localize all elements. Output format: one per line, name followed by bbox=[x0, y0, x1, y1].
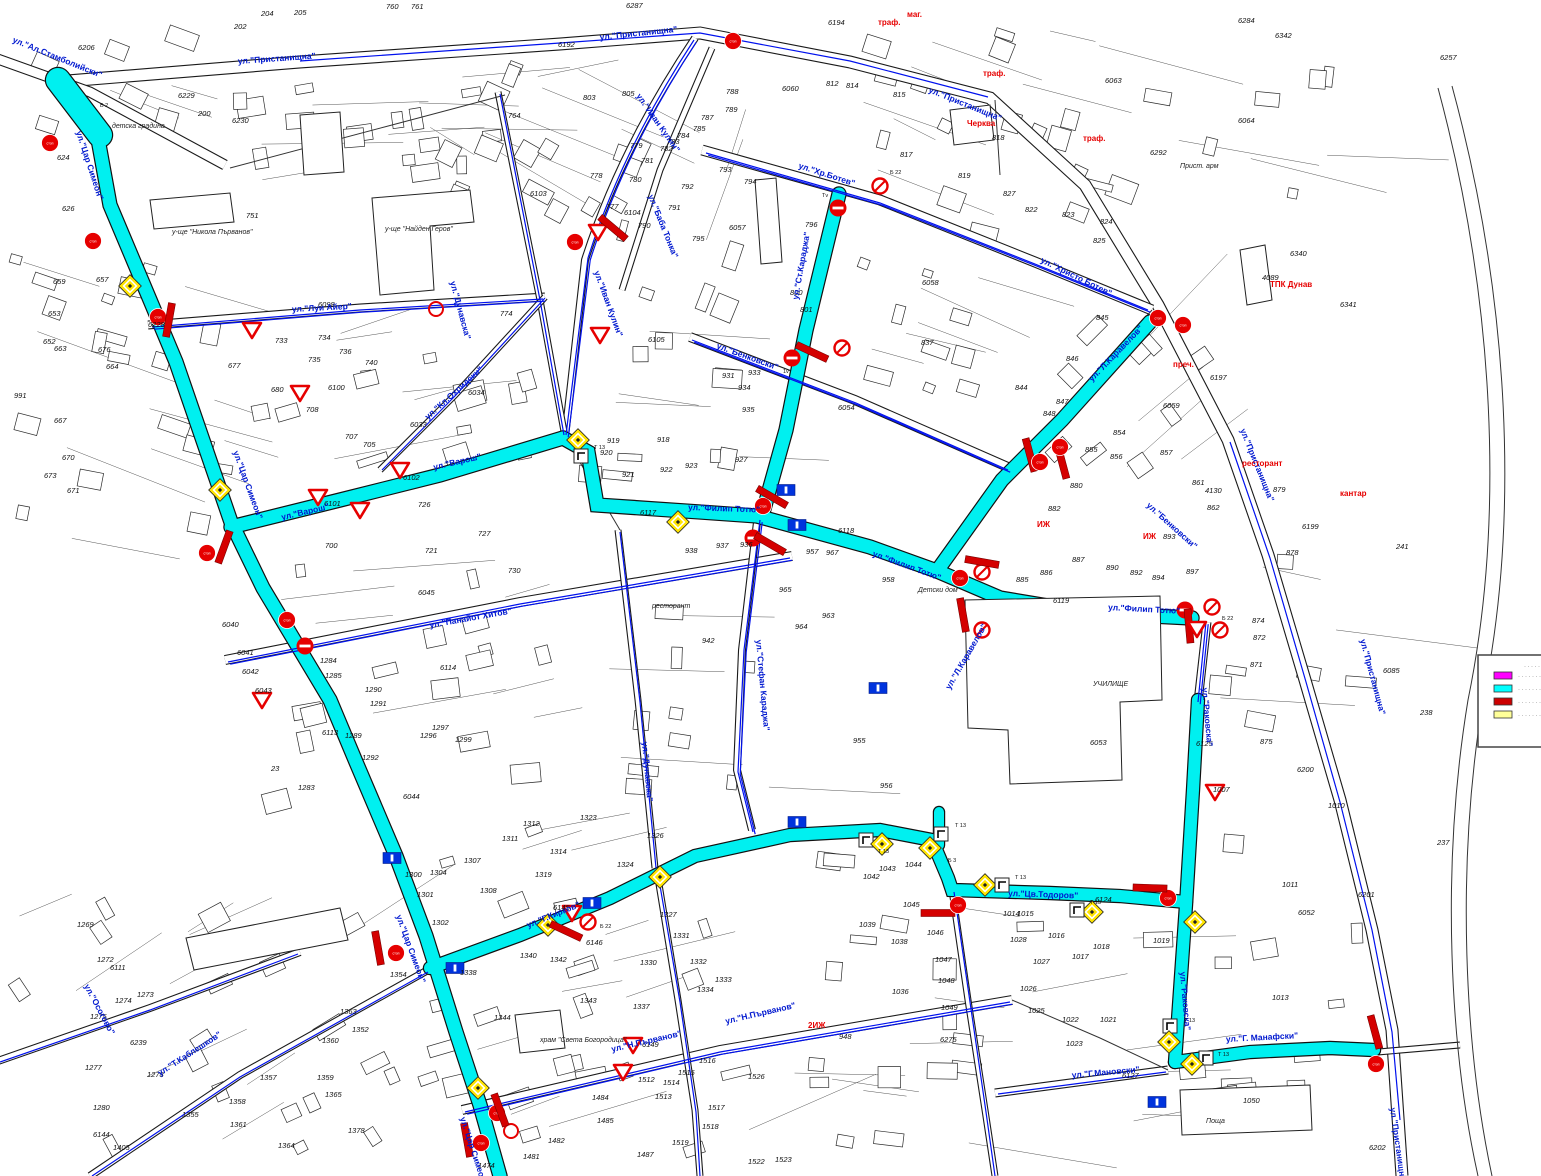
parcel-number: 874 bbox=[1252, 616, 1265, 625]
building-outline bbox=[104, 39, 129, 61]
building-outline bbox=[510, 763, 541, 785]
parcel-number: 726 bbox=[418, 500, 431, 509]
apartment-block bbox=[755, 178, 782, 264]
building-outline bbox=[1328, 999, 1344, 1009]
building-outline bbox=[857, 257, 870, 270]
parcel-number: 6043 bbox=[255, 686, 273, 695]
parcel-number: 1526 bbox=[748, 1072, 766, 1081]
parcel-number: 6057 bbox=[729, 223, 747, 232]
parcel-number: 1285 bbox=[325, 671, 343, 680]
parcel-number: 6341 bbox=[1340, 300, 1357, 309]
parcel-number: 1302 bbox=[432, 918, 450, 927]
building-outline bbox=[233, 93, 247, 110]
parcel-number: 1482 bbox=[548, 1136, 566, 1145]
building-outline bbox=[668, 733, 690, 749]
parcel-boundary bbox=[562, 981, 622, 992]
parcel-number: 965 bbox=[779, 585, 792, 594]
yield-sign-icon bbox=[243, 323, 261, 338]
legend-label: ·········· bbox=[1518, 674, 1541, 680]
building-outline bbox=[457, 156, 467, 174]
building-outline bbox=[158, 415, 191, 438]
parcel-number: 955 bbox=[853, 736, 866, 745]
parcel-boundary bbox=[281, 586, 394, 600]
parcel-number: 1307 bbox=[464, 856, 482, 865]
building-outline bbox=[293, 1140, 308, 1155]
parcel-number: 890 bbox=[1106, 563, 1119, 572]
parcel-number: 6202 bbox=[1369, 1143, 1387, 1152]
parcel-number: 1327 bbox=[660, 910, 678, 919]
parcel-number: 6042 bbox=[242, 667, 260, 676]
parcel-number: 778 bbox=[590, 171, 603, 180]
facility-label: маг. bbox=[907, 10, 922, 19]
parcel-number: 1519 bbox=[672, 1138, 690, 1147]
parcel-boundary bbox=[1336, 630, 1478, 648]
parcel-number: 885 bbox=[1016, 575, 1029, 584]
parcel-number: 822 bbox=[1025, 205, 1038, 214]
parcel-boundary bbox=[442, 128, 578, 130]
parcel-boundary bbox=[1023, 84, 1132, 113]
parcel-number: 653 bbox=[48, 309, 61, 318]
parcel-number: 1323 bbox=[580, 813, 598, 822]
parcel-number: 922 bbox=[660, 465, 673, 474]
building-outline bbox=[1209, 675, 1232, 696]
no-entry-sign-icon bbox=[830, 200, 847, 217]
building-outline bbox=[823, 853, 855, 868]
building-outline bbox=[950, 308, 972, 326]
parcel-number: 736 bbox=[339, 347, 352, 356]
facility-label: траф. bbox=[983, 69, 1005, 78]
stop-sign-icon bbox=[199, 545, 216, 562]
building-outline bbox=[878, 1067, 901, 1088]
parcel-number: 6292 bbox=[1150, 148, 1168, 157]
parcel-number: 1290 bbox=[365, 685, 383, 694]
parcel-number: 6287 bbox=[626, 1, 644, 10]
parcel-number: 671 bbox=[67, 486, 80, 495]
no-stopping-sign-icon bbox=[581, 915, 596, 930]
road bbox=[55, 33, 1402, 1176]
parcel-number: 727 bbox=[478, 529, 491, 538]
parcel-number: 1312 bbox=[523, 819, 541, 828]
parcel-number: 948 bbox=[839, 1032, 852, 1041]
parcel-number: 6111 bbox=[110, 963, 126, 972]
parcel-number: 1297 bbox=[432, 723, 450, 732]
parcel-number: 1022 bbox=[1062, 1015, 1080, 1024]
parcel-boundary bbox=[19, 894, 71, 916]
parcel-number: 789 bbox=[725, 105, 738, 114]
building-outline bbox=[633, 346, 648, 361]
legend-label: ········· bbox=[1518, 713, 1541, 719]
parcel-number: 663 bbox=[54, 344, 67, 353]
parcel-number: 734 bbox=[318, 333, 331, 342]
parcel-number: 812 bbox=[826, 79, 839, 88]
parcel-number: 1042 bbox=[863, 872, 881, 881]
parcel-number: 880 bbox=[1070, 481, 1083, 490]
building-outline bbox=[101, 293, 114, 305]
building-outline bbox=[1017, 921, 1044, 932]
building-label: у-ще "Найден Геров" bbox=[384, 225, 453, 233]
parcel-number: 670 bbox=[62, 453, 75, 462]
parcel-number: 677 bbox=[228, 361, 241, 370]
parcel-number: 918 bbox=[657, 435, 670, 444]
parcel-number: 815 bbox=[893, 90, 906, 99]
parcel-number: 6197 bbox=[1210, 373, 1228, 382]
parcel-number: 1292 bbox=[362, 753, 380, 762]
parcel-number: 1283 bbox=[298, 783, 316, 792]
parcel-number: 204 bbox=[260, 9, 274, 18]
parcel-number: 1016 bbox=[1048, 931, 1066, 940]
building-outline bbox=[295, 83, 314, 95]
parcel-number: 1273 bbox=[137, 990, 155, 999]
parcel-number: 700 bbox=[325, 541, 338, 550]
yield-sign-icon bbox=[291, 386, 309, 401]
parcel-number: 1045 bbox=[903, 900, 921, 909]
parcel-number: 6199 bbox=[1302, 522, 1320, 531]
parcel-number: 6200 bbox=[1297, 765, 1315, 774]
building-outline bbox=[864, 365, 894, 386]
stop-sign-icon bbox=[1175, 317, 1192, 334]
parcel-number: 927 bbox=[735, 455, 748, 464]
parcel-number: 1516 bbox=[699, 1056, 717, 1065]
parcel-number: 886 bbox=[1040, 568, 1053, 577]
one-way-sign-icon bbox=[583, 898, 601, 909]
facility-label: 2ИЖ bbox=[808, 1021, 826, 1030]
parcel-number: 1299 bbox=[455, 735, 473, 744]
parcel-boundary bbox=[609, 669, 724, 672]
building-outline bbox=[710, 293, 739, 323]
facility-label: траф. bbox=[1083, 134, 1105, 143]
building-outline bbox=[923, 382, 936, 394]
building-outline bbox=[9, 254, 22, 265]
parcel-number: 784 bbox=[677, 131, 690, 140]
sign-code-label: Б 22 bbox=[890, 170, 901, 176]
parcel-number: 855 bbox=[1085, 445, 1098, 454]
parcel-number: 6230 bbox=[232, 116, 250, 125]
facility-label: ИЖ bbox=[1143, 532, 1157, 541]
parcel-number: 751 bbox=[246, 211, 259, 220]
parcel-number: 967 bbox=[826, 548, 839, 557]
parcel-number: 1360 bbox=[322, 1036, 340, 1045]
parcel-number: 1358 bbox=[229, 1097, 247, 1106]
closure-bar-icon bbox=[921, 910, 955, 917]
building-outline bbox=[953, 1033, 984, 1047]
parcel-number: 1036 bbox=[892, 987, 910, 996]
parcel-number: 1021 bbox=[1100, 1015, 1117, 1024]
sign-code-label: 1v bbox=[783, 369, 789, 375]
building-outline bbox=[198, 902, 230, 932]
stop-sign-icon bbox=[1368, 1056, 1385, 1073]
parcel-number: 1319 bbox=[535, 870, 553, 879]
parcel-boundary bbox=[72, 538, 180, 559]
parcel-number: 1050 bbox=[1243, 1096, 1261, 1105]
signpost-plate-icon bbox=[1163, 1019, 1177, 1033]
parcel-number: 801 bbox=[800, 305, 813, 314]
building-outline bbox=[825, 961, 842, 981]
parcel-number: 779 bbox=[630, 141, 643, 150]
parcel-number: 937 bbox=[716, 541, 729, 550]
parcel-number: 733 bbox=[275, 336, 288, 345]
parcel-number: 6340 bbox=[1290, 249, 1308, 258]
building-outline bbox=[502, 64, 521, 88]
building-outline bbox=[419, 137, 440, 153]
stop-sign-icon bbox=[279, 612, 296, 629]
parcel-number: 6146 bbox=[586, 938, 604, 947]
parcel-number: 1046 bbox=[927, 928, 945, 937]
parcel-number: 938 bbox=[685, 546, 698, 555]
no-entry-sign-icon bbox=[297, 638, 314, 655]
building-label: детска градина bbox=[112, 122, 165, 130]
no-entry-sign-icon bbox=[784, 350, 801, 367]
parcel-number: 1269 bbox=[77, 920, 95, 929]
parcel-number: 735 bbox=[308, 355, 321, 364]
street-name-label: ул."Т.Каблешков" bbox=[156, 1029, 223, 1078]
building-outline bbox=[251, 403, 270, 421]
facility-label: ресторант bbox=[1242, 459, 1283, 468]
parcel-number: 933 bbox=[748, 368, 761, 377]
road bbox=[55, 33, 1402, 1176]
map-canvas[interactable]: стоп 20062066229623075162462620420520276… bbox=[0, 0, 1541, 1176]
building-outline bbox=[384, 1067, 400, 1085]
building-outline bbox=[423, 352, 437, 363]
parcel-boundary bbox=[621, 757, 743, 764]
parcel-number: 1517 bbox=[708, 1103, 726, 1112]
parcel-number: 6284 bbox=[1238, 16, 1255, 25]
parcel-number: 1324 bbox=[617, 860, 634, 869]
parcel-number: 1338 bbox=[460, 968, 478, 977]
parcel-number: 624 bbox=[57, 153, 70, 162]
parcel-number: 238 bbox=[1419, 708, 1433, 717]
building-outline bbox=[410, 163, 440, 183]
parcel-number: 964 bbox=[795, 622, 808, 631]
parcel-boundary bbox=[1127, 1034, 1241, 1050]
parcel-number: 6058 bbox=[922, 278, 940, 287]
signpost-plate-icon bbox=[1070, 903, 1084, 917]
building-outline bbox=[261, 788, 291, 814]
building-outline bbox=[457, 425, 472, 435]
street-name-label: ул."Бенковски" bbox=[1145, 500, 1200, 551]
parcel-number: 871 bbox=[1250, 660, 1263, 669]
building-outline bbox=[466, 650, 494, 671]
building-outline bbox=[850, 935, 877, 945]
building-outline bbox=[671, 647, 682, 669]
signpost-plate-icon bbox=[859, 833, 873, 847]
parcel-number: 1357 bbox=[260, 1073, 278, 1082]
parcel-number: 1007 bbox=[1213, 785, 1231, 794]
parcel-number: 6257 bbox=[1440, 53, 1458, 62]
route-highlight bbox=[58, 80, 1374, 1176]
parcel-number: 1333 bbox=[715, 975, 733, 984]
building-outline bbox=[35, 115, 58, 134]
parcel-number: 6102 bbox=[403, 473, 421, 482]
building-outline bbox=[8, 978, 30, 1002]
building-outline bbox=[281, 1103, 302, 1123]
parcel-number: 6119 bbox=[1053, 596, 1070, 605]
parcel-number: 740 bbox=[365, 358, 378, 367]
parcel-number: 6100 bbox=[328, 383, 346, 392]
signpost-plate-icon bbox=[934, 827, 948, 841]
parcel-boundary bbox=[336, 332, 392, 340]
parcel-boundary bbox=[538, 60, 619, 77]
building-outline bbox=[343, 128, 364, 148]
closure-bar-icon bbox=[1133, 884, 1167, 892]
building-outline bbox=[165, 25, 200, 51]
school-building bbox=[965, 596, 1162, 784]
parcel-boundary bbox=[978, 278, 1074, 307]
one-way-sign-icon bbox=[788, 520, 806, 531]
building-outline bbox=[14, 413, 41, 436]
parcel-number: 6117 bbox=[640, 508, 657, 517]
parcel-number: 6033 bbox=[410, 420, 428, 429]
parcel-number: 921 bbox=[622, 470, 635, 479]
building-outline bbox=[96, 897, 115, 920]
parcel-number: 1331 bbox=[673, 931, 690, 940]
parcel-number: 1013 bbox=[1272, 993, 1290, 1002]
parcel-boundary bbox=[894, 119, 936, 140]
yield-sign-icon bbox=[253, 693, 271, 708]
one-way-sign-icon bbox=[777, 485, 795, 496]
stop-sign-icon bbox=[1150, 310, 1167, 327]
no-stopping-sign-icon bbox=[873, 179, 888, 194]
building-label: храм "Света Богородица" bbox=[539, 1036, 627, 1044]
parcel-number: 6206 bbox=[78, 43, 96, 52]
legend-label: ········· bbox=[1518, 687, 1541, 693]
parcel-number: 892 bbox=[1130, 568, 1143, 577]
closure-bar-icon bbox=[372, 931, 385, 966]
parcel-number: 6114 bbox=[440, 663, 456, 672]
legend-swatch bbox=[1494, 698, 1512, 705]
parcel-number: 781 bbox=[641, 156, 654, 165]
parcel-number: 1018 bbox=[1093, 942, 1111, 951]
parcel-number: 6085 bbox=[1383, 666, 1401, 675]
signpost-plate-icon bbox=[995, 878, 1009, 892]
stop-sign-icon bbox=[85, 233, 102, 250]
building-outline bbox=[808, 1057, 824, 1071]
parcel-number: 814 bbox=[846, 81, 859, 90]
parcel-number: 1326 bbox=[647, 831, 665, 840]
parcel-number: 6192 bbox=[558, 40, 576, 49]
parcel-number: 1015 bbox=[1017, 909, 1035, 918]
building-outline bbox=[862, 34, 891, 59]
building-label: Поща bbox=[1206, 1118, 1225, 1125]
yield-sign-icon bbox=[351, 503, 369, 518]
building-outline bbox=[876, 130, 890, 149]
parcel-number: 730 bbox=[508, 566, 521, 575]
building-outline bbox=[891, 304, 905, 324]
parcel-boundary bbox=[477, 1037, 520, 1050]
parcel-number: 6105 bbox=[648, 335, 666, 344]
sign-code-label: Т 13 bbox=[594, 445, 605, 451]
parcel-boundary bbox=[1251, 159, 1387, 193]
parcel-number: 1028 bbox=[1010, 935, 1028, 944]
parcel-number: 1314 bbox=[550, 847, 567, 856]
parcel-number: 1026 bbox=[1020, 984, 1038, 993]
sign-code-label: Т 13 bbox=[1015, 875, 1026, 881]
parcel-number: 1010 bbox=[1328, 801, 1346, 810]
parcel-number: 824 bbox=[1100, 217, 1113, 226]
parcel-number: 6229 bbox=[178, 91, 196, 100]
parcel-number: 792 bbox=[681, 182, 694, 191]
parcel-number: 1027 bbox=[1033, 957, 1051, 966]
parcel-number: 1308 bbox=[480, 886, 498, 895]
parcel-number: 1487 bbox=[637, 1150, 655, 1159]
parcel-number: 935 bbox=[742, 405, 755, 414]
parcel-boundary bbox=[534, 708, 582, 718]
facility-label: Черква bbox=[967, 119, 996, 128]
building-outline bbox=[275, 403, 300, 422]
building-outline bbox=[639, 287, 655, 301]
parcel-number: 1289 bbox=[345, 731, 363, 740]
parcel-boundary bbox=[606, 920, 649, 934]
parcel-number: 1512 bbox=[638, 1075, 656, 1084]
parcel-number: 6103 bbox=[530, 189, 548, 198]
parcel-number: 6053 bbox=[1090, 738, 1108, 747]
parcel-number: 1277 bbox=[85, 1063, 103, 1072]
parcel-number: 6040 bbox=[222, 620, 240, 629]
parcel-number: 963 bbox=[822, 611, 835, 620]
parcel-number: 6194 bbox=[828, 18, 845, 27]
building-outline bbox=[461, 87, 481, 98]
parcel-number: 1330 bbox=[640, 958, 658, 967]
parcel-number: 856 bbox=[1110, 452, 1123, 461]
parcel-number: 887 bbox=[1072, 555, 1085, 564]
building-outline bbox=[836, 1134, 854, 1148]
legend-note: ····· bbox=[1524, 664, 1541, 670]
parcel-number: 817 bbox=[900, 150, 913, 159]
parcel-number: 6059 bbox=[1163, 401, 1181, 410]
kindergarten-building bbox=[300, 112, 344, 175]
parcel-number: 1296 bbox=[420, 731, 438, 740]
facility-label: ИЖ bbox=[1037, 520, 1051, 529]
parcel-number: 787 bbox=[701, 113, 714, 122]
parcel-number: 241 bbox=[1395, 542, 1409, 551]
parcel-number: 6201 bbox=[1358, 890, 1375, 899]
stop-sign-icon bbox=[388, 945, 405, 962]
church-building bbox=[515, 1010, 565, 1053]
parcel-number: 931 bbox=[722, 371, 735, 380]
parcel-number: 1523 bbox=[775, 1155, 793, 1164]
stop-sign-icon bbox=[1032, 454, 1049, 471]
parcel-number: 664 bbox=[106, 362, 119, 371]
parcel-number: 788 bbox=[726, 87, 739, 96]
building-outline bbox=[519, 1126, 540, 1143]
facility-label: траф. bbox=[878, 18, 900, 27]
building-outline bbox=[535, 645, 552, 665]
street-name-label: ул."Стефан Караджа" bbox=[754, 639, 772, 731]
parcel-number: 1363 bbox=[340, 1007, 358, 1016]
parcel-number: 1343 bbox=[580, 996, 598, 1005]
building-outline bbox=[514, 140, 542, 168]
building-outline bbox=[1060, 108, 1080, 130]
building-outline bbox=[77, 469, 103, 490]
building-outline bbox=[710, 449, 720, 463]
parcel-number: 6064 bbox=[1238, 116, 1255, 125]
one-way-sign-icon bbox=[1148, 1097, 1166, 1108]
parcel-number: 1405 bbox=[113, 1143, 131, 1152]
parcel-number: 6104 bbox=[624, 208, 641, 217]
parcel-number: 1304 bbox=[430, 868, 447, 877]
parcel-boundary bbox=[1050, 31, 1096, 42]
building-outline bbox=[1225, 665, 1246, 676]
sign-code-label: Т 13 bbox=[878, 849, 889, 855]
building-outline bbox=[498, 891, 529, 918]
parcel-number: 6239 bbox=[130, 1038, 148, 1047]
parcel-number: 780 bbox=[629, 175, 642, 184]
parcel-number: 1364 bbox=[278, 1141, 295, 1150]
parcel-number: 6144 bbox=[93, 1130, 110, 1139]
parcel-number: 760 bbox=[386, 2, 399, 11]
parcel-number: 942 bbox=[702, 636, 715, 645]
street-name-label: ул."Христо Ботев" bbox=[1039, 255, 1114, 298]
building-outline bbox=[303, 1093, 321, 1113]
